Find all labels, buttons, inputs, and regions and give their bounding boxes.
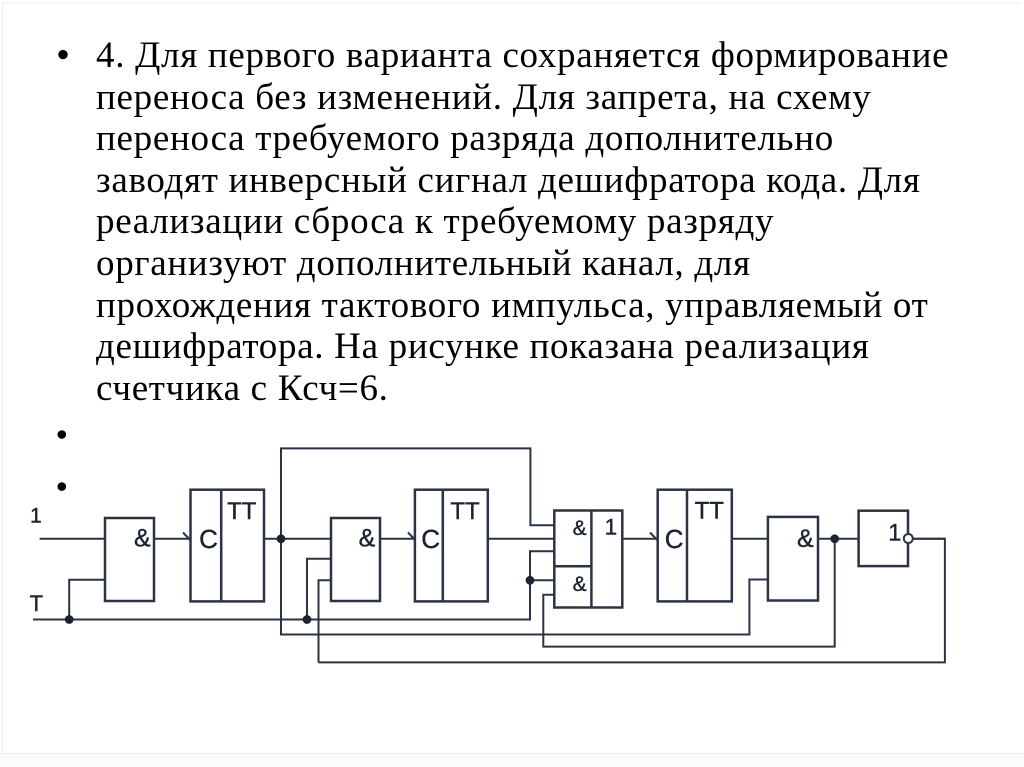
- svg-text:&: &: [797, 525, 814, 553]
- svg-text:&: &: [573, 517, 587, 540]
- svg-text:1: 1: [30, 504, 42, 527]
- svg-text:C: C: [665, 524, 684, 554]
- svg-text:TT: TT: [227, 498, 257, 525]
- svg-text:1: 1: [888, 519, 901, 546]
- svg-text:TT: TT: [695, 498, 725, 525]
- svg-text:&: &: [573, 573, 587, 596]
- svg-text:1: 1: [605, 514, 618, 539]
- svg-text:&: &: [134, 524, 151, 552]
- svg-text:C: C: [421, 524, 440, 554]
- svg-text:C: C: [199, 524, 218, 554]
- svg-text:TT: TT: [450, 498, 480, 525]
- svg-text:&: &: [359, 524, 376, 552]
- svg-text:T: T: [30, 591, 43, 616]
